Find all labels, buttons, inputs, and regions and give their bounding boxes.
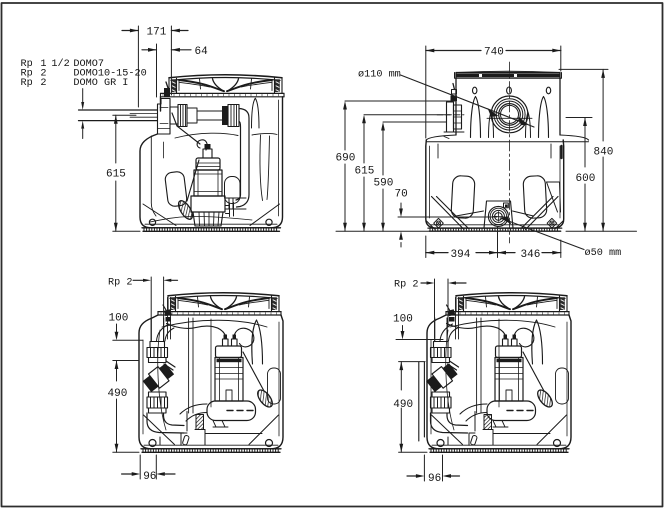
svg-text:100: 100 — [109, 313, 129, 325]
svg-text:ø110 mm: ø110 mm — [358, 70, 401, 81]
svg-text:690: 690 — [336, 153, 356, 165]
svg-text:615: 615 — [106, 169, 126, 181]
svg-text:590: 590 — [374, 178, 394, 190]
svg-text:DOMO GR I: DOMO GR I — [73, 78, 128, 89]
svg-text:96: 96 — [428, 473, 441, 485]
svg-text:64: 64 — [195, 46, 209, 58]
svg-text:171: 171 — [147, 27, 167, 39]
svg-text:ø50 mm: ø50 mm — [585, 248, 622, 259]
svg-text:2: 2 — [40, 78, 46, 89]
svg-text:1/2: 1/2 — [51, 58, 69, 70]
svg-text:Rp 2: Rp 2 — [108, 278, 132, 289]
svg-text:346: 346 — [521, 249, 541, 261]
svg-text:Rp: Rp — [21, 78, 33, 89]
svg-text:615: 615 — [355, 166, 375, 178]
svg-text:Rp 2: Rp 2 — [394, 280, 418, 291]
svg-text:394: 394 — [451, 249, 471, 261]
svg-text:490: 490 — [393, 399, 413, 411]
svg-text:490: 490 — [108, 388, 128, 400]
svg-text:600: 600 — [576, 173, 596, 185]
svg-text:70: 70 — [395, 189, 408, 201]
svg-text:96: 96 — [143, 471, 156, 483]
svg-text:100: 100 — [393, 314, 413, 326]
svg-text:840: 840 — [594, 147, 614, 159]
svg-text:740: 740 — [484, 47, 504, 59]
